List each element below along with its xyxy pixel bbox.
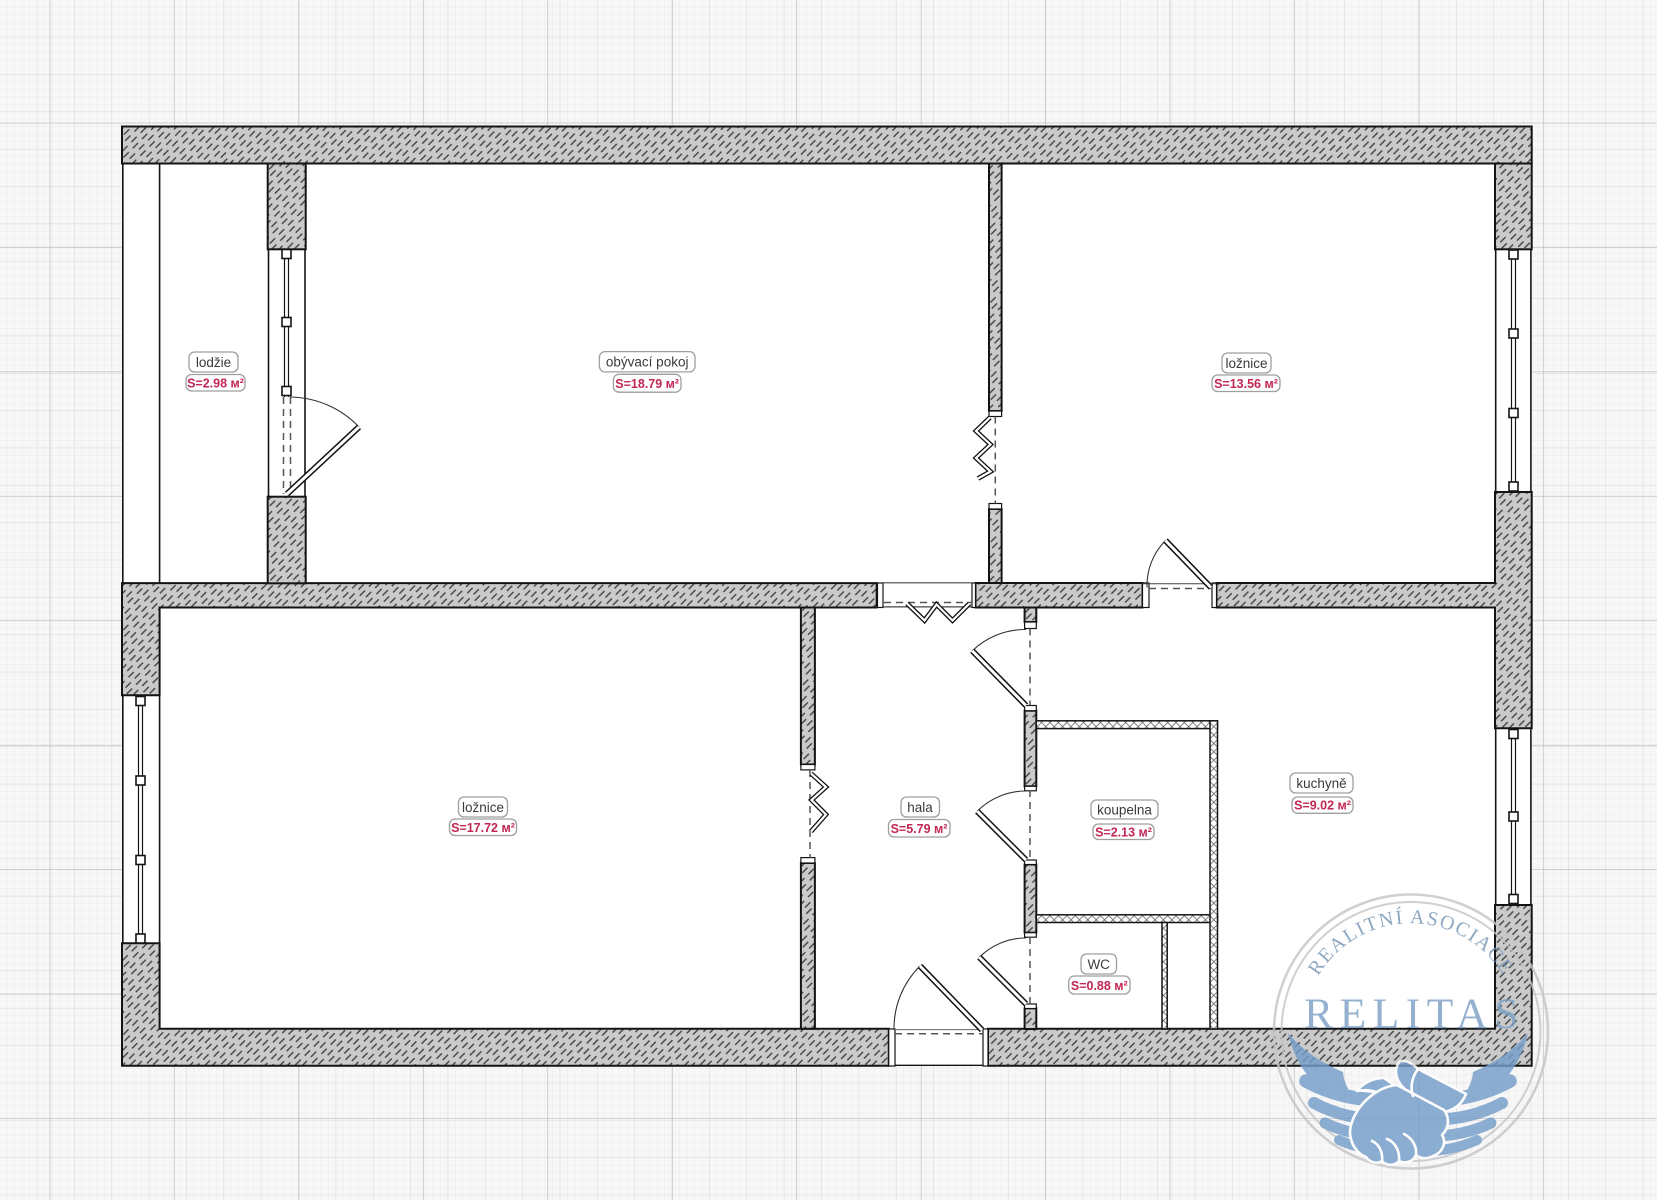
svg-text:obývací pokoj: obývací pokoj [606,355,689,370]
svg-text:ložnice: ložnice [462,800,504,815]
svg-text:S=9.02 м²: S=9.02 м² [1294,798,1351,812]
svg-text:ložnice: ložnice [1225,356,1267,371]
svg-text:kuchyně: kuchyně [1296,776,1346,791]
svg-text:S=18.79 м²: S=18.79 м² [615,377,679,391]
svg-text:S=2.13 м²: S=2.13 м² [1095,826,1152,840]
svg-text:lodžie: lodžie [196,355,231,370]
svg-text:S=13.56 м²: S=13.56 м² [1214,377,1278,391]
svg-text:hala: hala [907,800,933,815]
svg-text:koupelna: koupelna [1097,802,1152,817]
svg-text:S=5.79 м²: S=5.79 м² [891,822,948,836]
svg-text:RELITAS: RELITAS [1304,990,1525,1038]
svg-text:WC: WC [1087,957,1110,972]
svg-text:S=2.98 м²: S=2.98 м² [187,376,244,390]
svg-text:S=0.88 м²: S=0.88 м² [1071,979,1128,993]
svg-text:S=17.72 м²: S=17.72 м² [451,821,515,835]
